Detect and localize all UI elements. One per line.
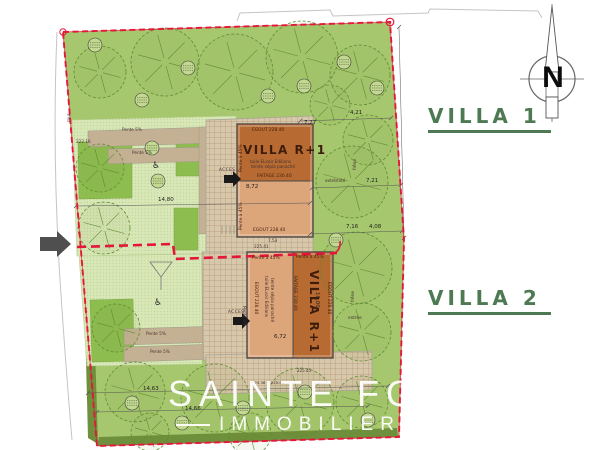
context-sketch-top bbox=[237, 9, 542, 21]
tree-species-label: frêne bbox=[351, 291, 355, 302]
site-plan-page: N VILLA 1 VILLA 2 EGOUT 228.40 VILLA R+1… bbox=[0, 0, 600, 450]
site-entry-arrow-icon bbox=[40, 231, 71, 257]
villa1-name: VILLA R+1 bbox=[243, 144, 327, 156]
villa1-building-shape bbox=[237, 124, 313, 237]
slope-label: Pente 5% bbox=[132, 151, 152, 155]
logo-rule-right bbox=[410, 424, 444, 426]
villa1-slope-top: Pente à 45% bbox=[240, 144, 244, 172]
agency-watermark: SAINTE FOY IMMOBILIER bbox=[140, 376, 480, 436]
villa1-title: VILLA 1 bbox=[428, 104, 551, 133]
dim-label: 7,16 bbox=[346, 225, 358, 231]
slope-label: Pente 5% bbox=[122, 128, 142, 132]
boundary-corner-dot bbox=[389, 21, 392, 24]
slope-label: Pente 5% bbox=[146, 332, 166, 336]
level-label: 225.41 bbox=[254, 245, 269, 249]
garden-patch bbox=[174, 208, 198, 250]
dim-label: 7,53 bbox=[268, 239, 277, 243]
acces-label-villa2: ACCES bbox=[228, 310, 244, 314]
dim-label: 14,80 bbox=[158, 198, 174, 204]
mur-label: mur bbox=[67, 114, 71, 122]
villa1-faitage: FAITAGE 230.40 bbox=[257, 175, 292, 179]
villa1-width-dim: 8,72 bbox=[246, 185, 258, 191]
villa2-tile-line2: teinte sépia panaché bbox=[270, 278, 274, 322]
agency-tagline: IMMOBILIER bbox=[219, 414, 401, 436]
villa2-egout-right: EGOUT 228.40 bbox=[326, 282, 330, 314]
dim-label: 4,08 bbox=[369, 225, 381, 231]
logo-rule-left bbox=[176, 424, 210, 426]
dim-label: 4,21 bbox=[350, 111, 362, 117]
agency-name: SAINTE FOY bbox=[140, 376, 480, 412]
villa1-tile-line2: teinte sépia panaché bbox=[251, 165, 295, 169]
tree-species-label: frêne bbox=[353, 159, 357, 170]
entree-label: entrée bbox=[348, 316, 362, 320]
extremite-label: extrémité bbox=[325, 179, 345, 183]
villa1-egout-top: EGOUT 228.40 bbox=[252, 129, 284, 133]
villa2-title: VILLA 2 bbox=[428, 286, 551, 315]
dim-label: 7,27 bbox=[304, 121, 316, 127]
villa2-slope-b: Pente à 45% bbox=[296, 256, 324, 260]
villa2-egout-left: EGOUT 228.40 bbox=[253, 282, 257, 314]
villa1-egout-bottom: EGOUT 228.40 bbox=[253, 229, 285, 233]
villa2-depth-dim: 10,00 bbox=[314, 292, 320, 308]
compass-north-letter: N bbox=[539, 61, 567, 95]
slope-label: Pente 5% bbox=[150, 350, 170, 354]
villa2-tile-line1: tuile ELvoir Edilians bbox=[264, 276, 268, 317]
villa2-name: VILLA R+1 bbox=[308, 270, 320, 354]
acces-label-villa1: ACCES bbox=[219, 168, 235, 172]
villa2-width-dim: 6,72 bbox=[274, 335, 286, 341]
villa1-slope-bottom: Pente à 45% bbox=[240, 202, 244, 230]
wheelchair-icon: ♿ bbox=[154, 298, 162, 308]
villa2-faitage: FAITAGE 230.40 bbox=[292, 276, 296, 311]
villa2-slope-a: Pente à 45% bbox=[252, 257, 280, 261]
dim-label: 7,21 bbox=[366, 179, 378, 185]
wheelchair-icon: ♿ bbox=[152, 161, 160, 171]
level-label: 222.16 bbox=[76, 140, 91, 144]
